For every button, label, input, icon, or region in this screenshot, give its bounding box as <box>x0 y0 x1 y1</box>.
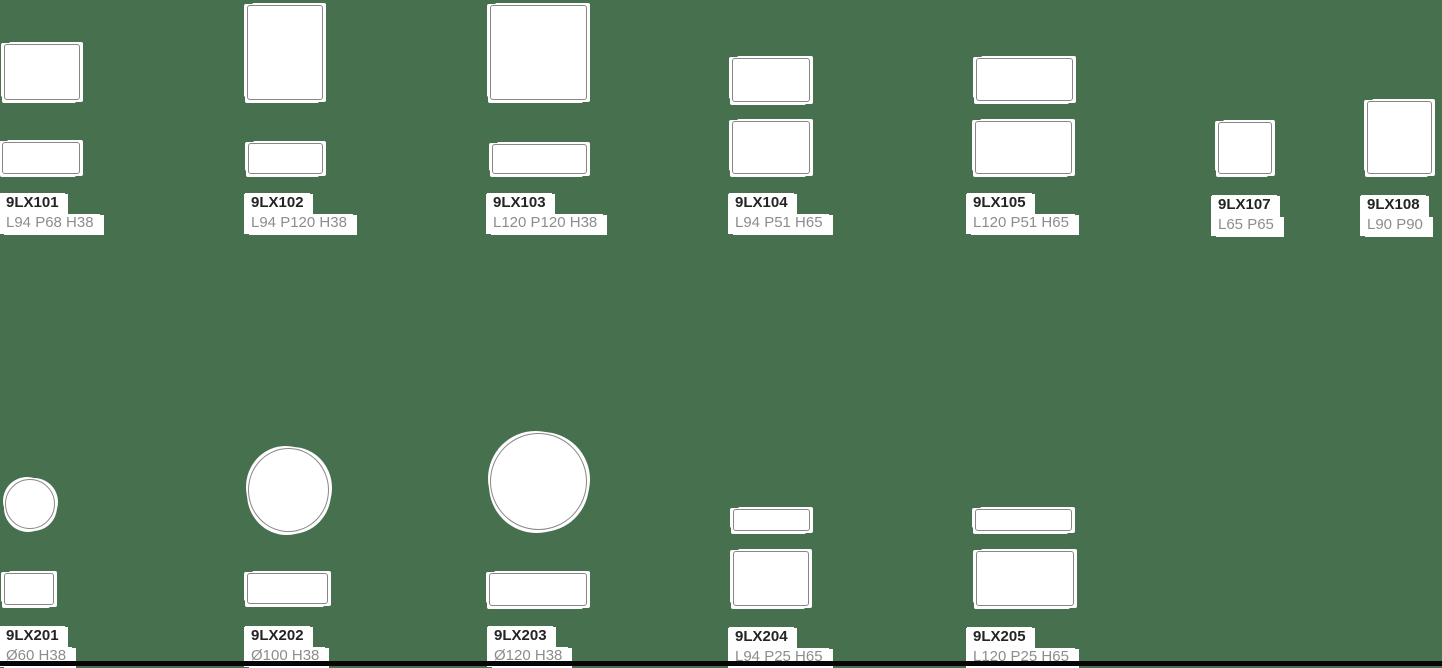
product-code: 9LX104 <box>729 193 794 213</box>
product-code: 9LX202 <box>245 626 310 646</box>
product-label: 9LX103 L120 P120 H38 <box>487 193 603 234</box>
product-code: 9LX205 <box>967 627 1032 647</box>
product-dimensions: L120 P120 H38 <box>487 214 603 234</box>
product-label: 9LX104 L94 P51 H65 <box>729 193 829 234</box>
product-code: 9LX107 <box>1212 195 1277 215</box>
front-view-shape <box>975 121 1072 174</box>
product-label: 9LX102 L94 P120 H38 <box>245 193 353 234</box>
top-view-circle <box>490 433 587 530</box>
product-label: 9LX105 L120 P51 H65 <box>967 193 1075 234</box>
product-spec-sheet: 9LX101 L94 P68 H38 9LX102 L94 P120 H38 9… <box>0 0 1442 666</box>
front-view-shape <box>2 142 80 174</box>
top-view-circle <box>5 479 55 529</box>
product-code: 9LX203 <box>488 626 553 646</box>
top-view-shape <box>4 44 80 100</box>
product-code: 9LX108 <box>1361 195 1426 215</box>
product-code: 9LX201 <box>0 626 65 646</box>
product-dimensions: L94 P68 H38 <box>0 214 100 234</box>
top-view-shape <box>1218 122 1272 174</box>
product-code: 9LX102 <box>245 193 310 213</box>
product-code: 9LX105 <box>967 193 1032 213</box>
front-view-shape <box>732 121 810 174</box>
product-label: 9LX108 L90 P90 <box>1361 195 1429 236</box>
front-view-shape <box>247 573 328 604</box>
top-view-shape <box>490 5 587 100</box>
front-view-shape <box>489 573 587 606</box>
product-code: 9LX101 <box>0 193 65 213</box>
front-view-shape <box>248 143 323 174</box>
front-view-shape <box>733 551 809 606</box>
product-code: 9LX103 <box>487 193 552 213</box>
top-view-circle <box>248 448 329 532</box>
top-view-shape <box>976 58 1073 101</box>
top-view-shape <box>733 509 810 531</box>
front-view-shape <box>976 551 1074 606</box>
top-view-shape <box>975 509 1072 531</box>
product-dimensions: L94 P51 H65 <box>729 214 829 234</box>
front-view-shape <box>492 144 587 174</box>
product-label: 9LX101 L94 P68 H38 <box>0 193 100 234</box>
bottom-bar <box>0 661 1442 666</box>
product-label: 9LX107 L65 P65 <box>1212 195 1280 236</box>
product-dimensions: L94 P120 H38 <box>245 214 353 234</box>
product-code: 9LX204 <box>729 627 794 647</box>
front-view-shape <box>4 573 54 605</box>
product-dimensions: L120 P51 H65 <box>967 214 1075 234</box>
top-view-shape <box>732 58 810 102</box>
top-view-shape <box>1367 101 1432 174</box>
product-dimensions: L65 P65 <box>1212 216 1280 236</box>
product-dimensions: L90 P90 <box>1361 216 1429 236</box>
top-view-shape <box>247 5 323 100</box>
